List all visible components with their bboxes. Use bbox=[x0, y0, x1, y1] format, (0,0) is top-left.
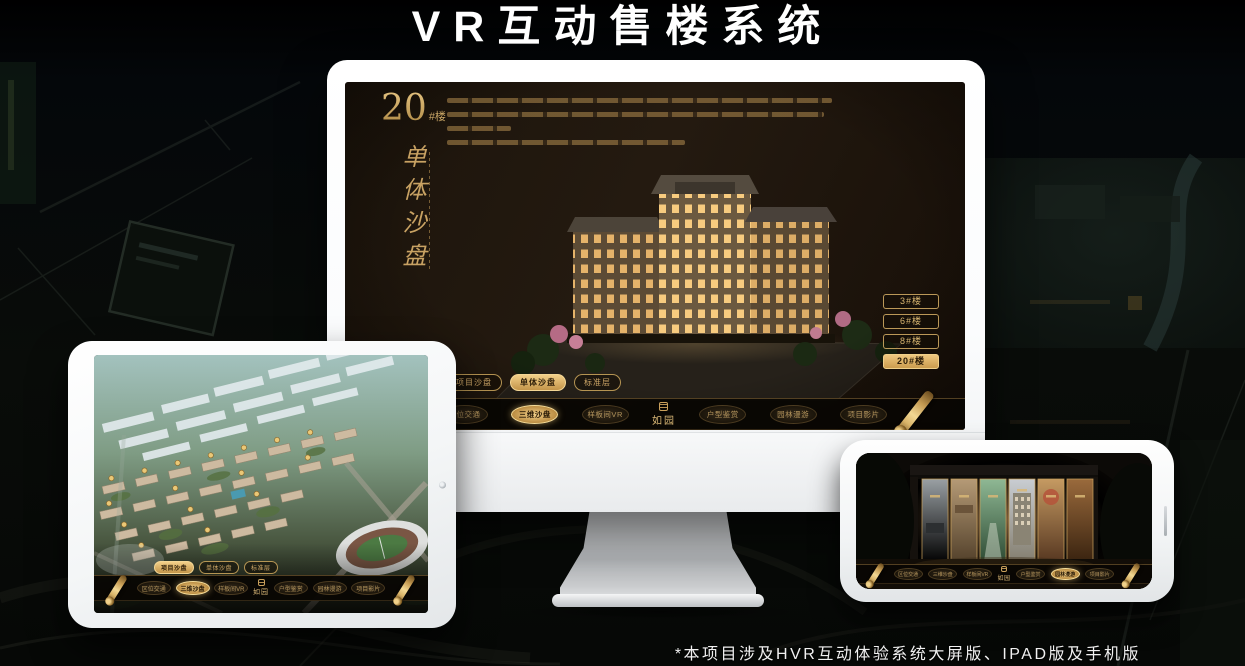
faint-seal-icon bbox=[1128, 296, 1142, 310]
nav-item-sandtable[interactable]: 三维沙盘 bbox=[176, 581, 210, 595]
floor-button-8[interactable]: 8#楼 bbox=[883, 334, 939, 349]
description-line bbox=[447, 140, 685, 145]
faint-left-sign bbox=[0, 62, 36, 204]
phone-navbar: 区位交通 三维沙盘 样板间VR 如园 户型鉴赏 园林漫游 项目影片 bbox=[856, 564, 1152, 584]
nav-item-project-film[interactable]: 项目影片 bbox=[1085, 568, 1114, 580]
seal-icon bbox=[659, 402, 668, 411]
scroll-icon[interactable] bbox=[1123, 562, 1141, 586]
nav-item-showroom-vr[interactable]: 样板间VR bbox=[963, 568, 992, 580]
mode-pill-floor[interactable]: 标准层 bbox=[244, 561, 278, 574]
stage: 20#楼 单体沙盘 3#楼 6#楼 8#楼 20#楼 项目沙盘 单体沙盘 bbox=[0, 0, 1245, 666]
brand-logo[interactable]: 如园 bbox=[253, 579, 269, 597]
brand-logo[interactable]: 如园 bbox=[997, 566, 1010, 582]
building-number: 20 bbox=[381, 88, 427, 129]
nav-item-garden-tour[interactable]: 园林漫游 bbox=[313, 581, 347, 595]
tablet-screen: 项目沙盘 单体沙盘 标准层 区位交通 三维沙盘 样板间VR 如园 户型鉴赏 园林… bbox=[94, 355, 428, 613]
camera-icon bbox=[439, 481, 446, 488]
nav-item-project-film[interactable]: 项目影片 bbox=[351, 581, 385, 595]
floor-button-6[interactable]: 6#楼 bbox=[883, 314, 939, 329]
nav-item-garden-tour[interactable]: 园林漫游 bbox=[770, 405, 817, 424]
floor-button-3[interactable]: 3#楼 bbox=[883, 294, 939, 309]
nav-item-sandtable[interactable]: 三维沙盘 bbox=[511, 405, 558, 424]
phone-device: 区位交通 三维沙盘 样板间VR 如园 户型鉴赏 园林漫游 项目影片 bbox=[840, 440, 1174, 602]
seal-icon bbox=[1001, 566, 1007, 572]
building-headline: 20#楼 bbox=[381, 90, 446, 128]
description-line bbox=[447, 126, 511, 131]
nav-item-unit-plans[interactable]: 户型鉴赏 bbox=[274, 581, 308, 595]
tablet-device: 项目沙盘 单体沙盘 标准层 区位交通 三维沙盘 样板间VR 如园 户型鉴赏 园林… bbox=[68, 341, 456, 628]
mode-pill-single[interactable]: 单体沙盘 bbox=[510, 374, 566, 391]
mode-pill-floor[interactable]: 标准层 bbox=[574, 374, 621, 391]
building-unit: #楼 bbox=[429, 111, 446, 123]
scroll-icon[interactable] bbox=[394, 573, 416, 602]
nav-item-showroom-vr[interactable]: 样板间VR bbox=[582, 405, 629, 424]
nav-item-unit-plans[interactable]: 户型鉴赏 bbox=[1016, 568, 1045, 580]
mode-pill-project[interactable]: 项目沙盘 bbox=[154, 561, 194, 574]
nav-item-unit-plans[interactable]: 户型鉴赏 bbox=[699, 405, 746, 424]
nav-item-project-film[interactable]: 项目影片 bbox=[840, 405, 887, 424]
subtitle-english-hint bbox=[429, 152, 430, 270]
footnote: *本项目涉及HVR互动体验系统大屏版、IPAD版及手机版 bbox=[675, 640, 1141, 664]
scroll-icon[interactable] bbox=[867, 562, 885, 586]
scroll-icon[interactable] bbox=[106, 573, 128, 602]
phone-screen: 区位交通 三维沙盘 样板间VR 如园 户型鉴赏 园林漫游 项目影片 bbox=[856, 453, 1152, 589]
page-title: VR互动售楼系统 bbox=[0, 0, 1245, 54]
nav-item-location[interactable]: 区位交通 bbox=[137, 581, 171, 595]
mode-pill-single[interactable]: 单体沙盘 bbox=[199, 561, 239, 574]
brand-logo[interactable]: 如园 bbox=[652, 402, 676, 427]
nav-item-garden-tour[interactable]: 园林漫游 bbox=[1051, 568, 1080, 580]
background-photo bbox=[985, 158, 1245, 348]
building-subtitle: 单体沙盘 bbox=[395, 144, 430, 276]
description-line bbox=[447, 98, 832, 103]
description-line bbox=[447, 112, 824, 117]
floor-button-20[interactable]: 20#楼 bbox=[883, 354, 939, 369]
floor-button-group: 3#楼 6#楼 8#楼 20#楼 bbox=[883, 294, 939, 369]
side-button bbox=[1164, 506, 1167, 536]
monitor-stand-base bbox=[552, 594, 764, 607]
faint-sign-board bbox=[109, 222, 233, 335]
mode-pill-group: 项目沙盘 单体沙盘 标准层 bbox=[446, 374, 621, 391]
seal-icon bbox=[258, 579, 265, 586]
nav-item-location[interactable]: 区位交通 bbox=[894, 568, 923, 580]
tablet-navbar: 区位交通 三维沙盘 样板间VR 如园 户型鉴赏 园林漫游 项目影片 bbox=[94, 575, 428, 601]
monitor-stand-neck bbox=[560, 512, 756, 598]
nav-item-showroom-vr[interactable]: 样板间VR bbox=[214, 581, 248, 595]
tablet-mode-pill-group: 项目沙盘 单体沙盘 标准层 bbox=[154, 561, 278, 574]
description-lines bbox=[447, 98, 832, 154]
nav-item-sandtable[interactable]: 三维沙盘 bbox=[928, 568, 957, 580]
